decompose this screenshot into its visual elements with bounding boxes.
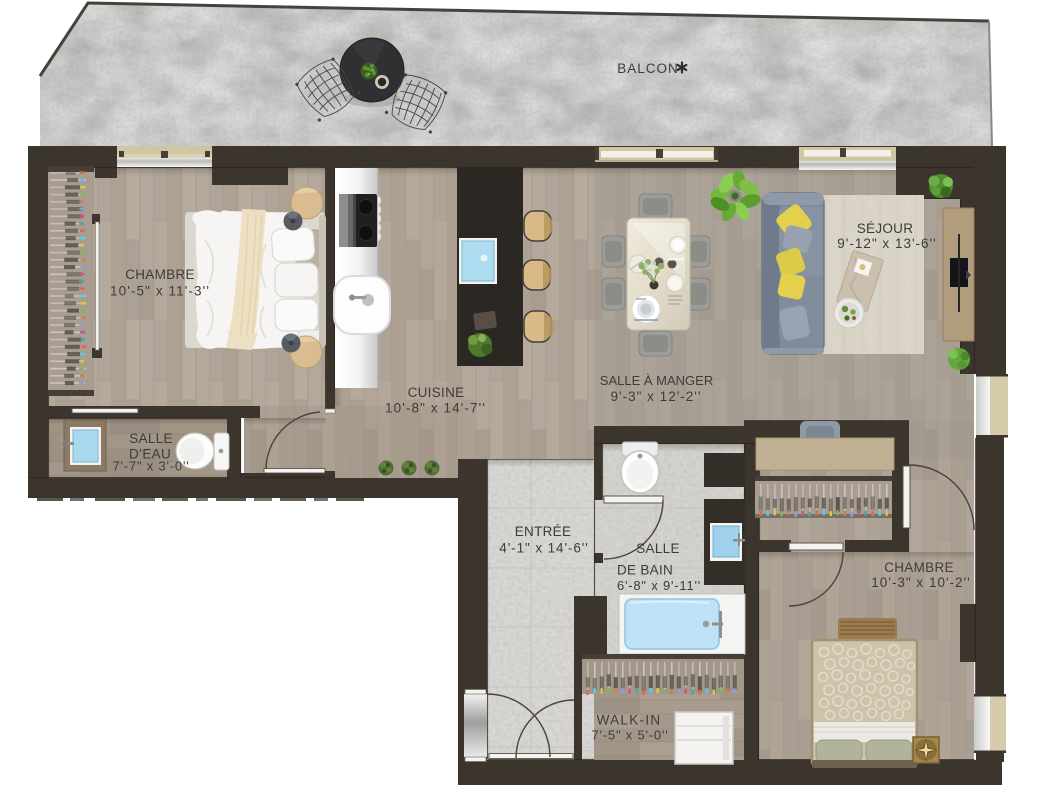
svg-text:SALLE À MANGER: SALLE À MANGER [600, 373, 713, 388]
svg-text:SALLE: SALLE [129, 431, 173, 446]
svg-text:DE BAIN: DE BAIN [617, 563, 673, 578]
svg-text:SÉJOUR: SÉJOUR [857, 221, 914, 236]
svg-text:CUISINE: CUISINE [408, 385, 465, 400]
svg-text:WALK-IN: WALK-IN [597, 713, 662, 728]
svg-text:7'-5" x 5'-0'': 7'-5" x 5'-0'' [591, 728, 668, 743]
svg-text:ENTRÉE: ENTRÉE [515, 524, 572, 539]
svg-text:10'-5" x 11'-3'': 10'-5" x 11'-3'' [110, 284, 210, 299]
svg-text:CHAMBRE: CHAMBRE [884, 560, 954, 575]
svg-text:9'-3" x 12'-2'': 9'-3" x 12'-2'' [611, 389, 702, 404]
svg-text:10'-3" x 10'-2'': 10'-3" x 10'-2'' [871, 575, 970, 590]
svg-text:9'-12" x 13'-6'': 9'-12" x 13'-6'' [837, 236, 936, 251]
svg-text:SALLE: SALLE [636, 541, 680, 556]
svg-text:7'-7" x 3'-0'': 7'-7" x 3'-0'' [112, 459, 189, 474]
svg-text:CHAMBRE: CHAMBRE [125, 267, 195, 282]
svg-text:6'-8" x 9'-11'': 6'-8" x 9'-11'' [617, 578, 701, 593]
svg-text:4'-1" x 14'-6'': 4'-1" x 14'-6'' [499, 541, 588, 556]
svg-text:10'-8" x 14'-7'': 10'-8" x 14'-7'' [385, 401, 486, 416]
svg-text:BALCON: BALCON [617, 61, 679, 76]
